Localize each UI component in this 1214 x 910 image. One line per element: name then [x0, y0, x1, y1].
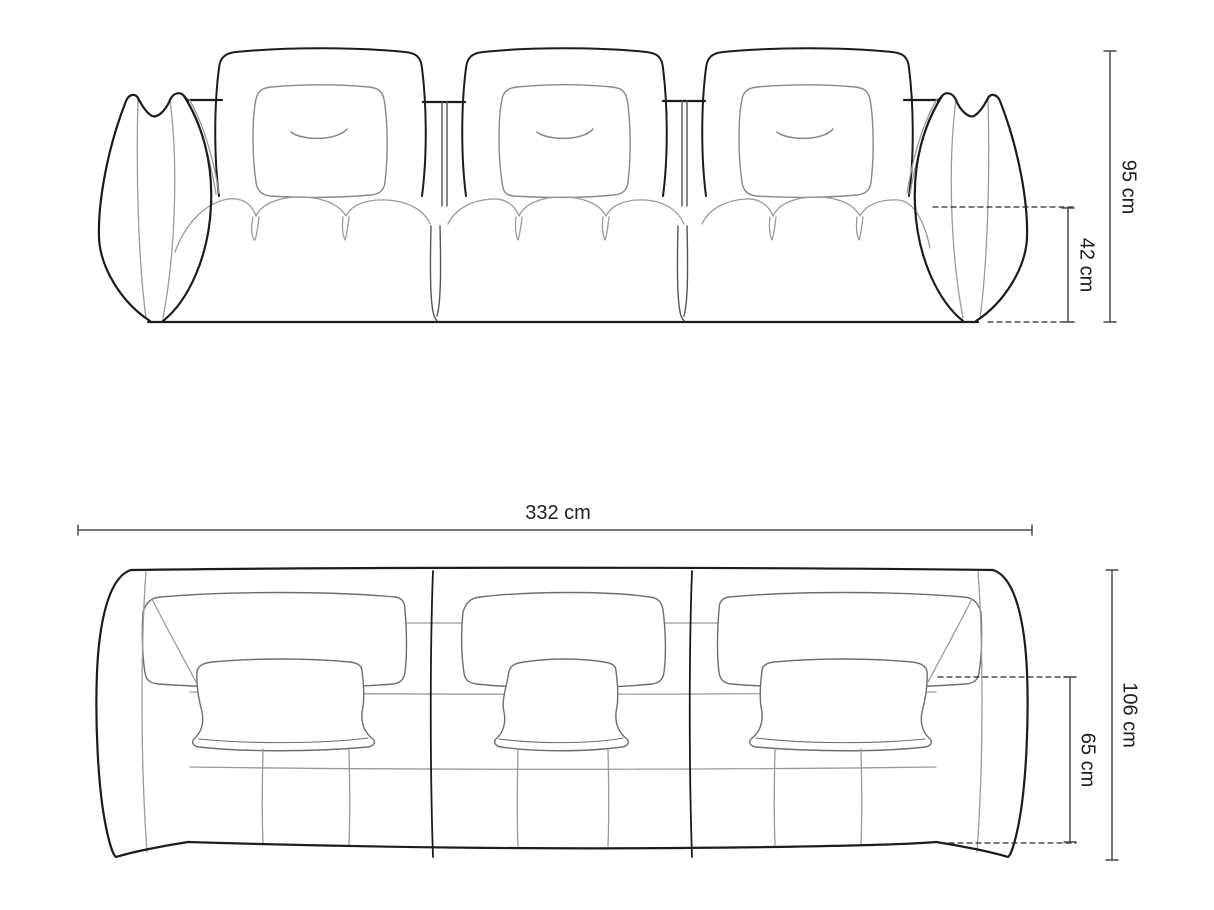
seat-scallop-module-3 — [702, 197, 930, 248]
seat-grid-vertical-module-2 — [517, 750, 609, 846]
diagram-canvas: 95 cm 42 cm 332 cm 106 cm 65 cm — [0, 0, 1214, 910]
pillow-crease-1 — [291, 129, 347, 138]
dimension-line-106 — [1106, 570, 1118, 860]
module-separator-plan-1 — [431, 571, 433, 857]
pillow-crease-3 — [777, 129, 833, 138]
module-separator-front-2 — [677, 226, 687, 321]
pillow-plan-3 — [750, 659, 932, 751]
sofa-dimension-diagram: 95 cm 42 cm 332 cm 106 cm 65 cm — [0, 0, 1214, 910]
pillow-1 — [253, 85, 387, 198]
module-joint-back-1 — [442, 102, 447, 206]
dimension-total-width: 332 cm — [78, 502, 1032, 535]
dimension-line-65 — [1064, 677, 1076, 842]
dimension-total-height: 95 cm — [1104, 51, 1140, 322]
dimension-label-95: 95 cm — [1118, 160, 1140, 214]
left-armrest — [99, 93, 219, 321]
pillow-top-outline — [495, 659, 629, 751]
dimension-label-42: 42 cm — [1076, 238, 1098, 292]
dimension-seat-depth: 65 cm — [1064, 677, 1099, 842]
back-cushion-3 — [702, 48, 913, 196]
pillow-3 — [739, 85, 873, 198]
seat-scallop-module-2 — [448, 197, 684, 224]
back-cushion-2 — [462, 48, 667, 196]
seat-scallop-module-1 — [175, 197, 430, 252]
pillow-plan-1 — [193, 659, 375, 751]
pillow-plan-2 — [495, 659, 629, 751]
dimension-total-depth: 106 cm — [1106, 570, 1141, 860]
seat-grid-vertical-module-3 — [774, 749, 862, 845]
dimension-line-42 — [1062, 208, 1074, 322]
top-view-back-edge — [131, 568, 993, 570]
top-view — [96, 568, 1076, 857]
dimension-label-106: 106 cm — [1119, 682, 1141, 748]
seat-grid-vertical-module-1 — [262, 749, 350, 845]
dimension-label-332: 332 cm — [525, 502, 591, 524]
back-cushion-1 — [215, 48, 426, 196]
top-view-front-edge — [188, 842, 936, 848]
module-separator-plan-2 — [690, 571, 692, 857]
tuft-creases-module-3 — [769, 217, 863, 240]
module-joint-back-2 — [682, 101, 687, 206]
dimension-line-95 — [1104, 51, 1116, 322]
pillow-2 — [499, 85, 630, 198]
module-separator-front-1 — [430, 226, 440, 321]
front-view — [99, 48, 1076, 322]
tuft-creases-module-2 — [515, 217, 609, 240]
seat-grid-horizontal — [190, 767, 936, 769]
tuft-creases-module-1 — [252, 217, 349, 240]
dimension-seat-height: 42 cm — [1062, 208, 1098, 322]
dimension-line-332 — [78, 525, 1032, 535]
pillow-crease-2 — [537, 129, 593, 138]
dimension-label-65: 65 cm — [1077, 733, 1099, 787]
